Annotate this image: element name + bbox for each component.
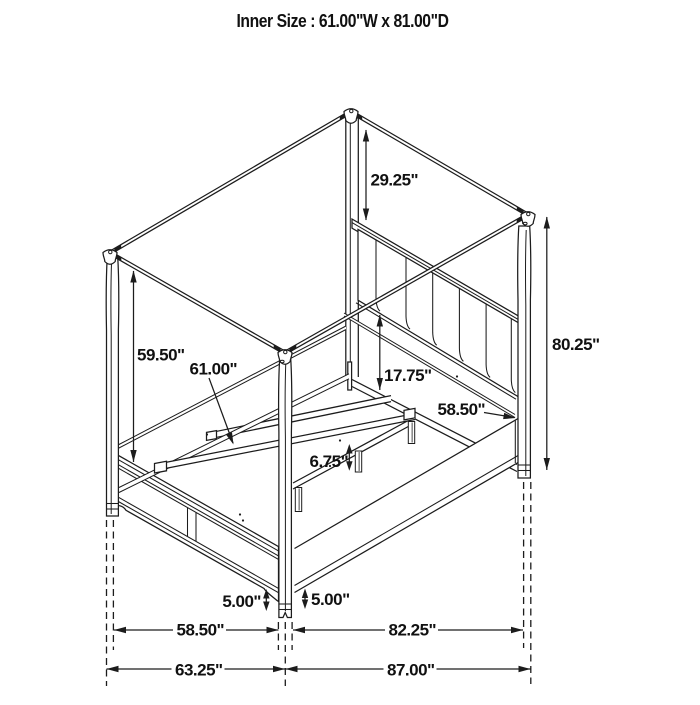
svg-text:5.00": 5.00" <box>222 592 261 611</box>
svg-text:58.50": 58.50" <box>177 621 225 640</box>
svg-text:61.00": 61.00" <box>190 360 238 379</box>
svg-text:Inner Size : 61.00"W x 81.00"D: Inner Size : 61.00"W x 81.00"D <box>237 10 449 31</box>
svg-text:59.50": 59.50" <box>137 346 185 365</box>
svg-text:63.25": 63.25" <box>175 661 223 680</box>
svg-text:82.25": 82.25" <box>389 621 437 640</box>
svg-text:17.75": 17.75" <box>384 366 432 385</box>
svg-text:5.00": 5.00" <box>311 590 350 609</box>
svg-text:87.00": 87.00" <box>387 661 435 680</box>
svg-text:6.75": 6.75" <box>310 452 349 471</box>
svg-text:58.50": 58.50" <box>438 400 486 419</box>
svg-text:80.25": 80.25" <box>552 335 600 354</box>
svg-text:29.25": 29.25" <box>371 171 419 190</box>
